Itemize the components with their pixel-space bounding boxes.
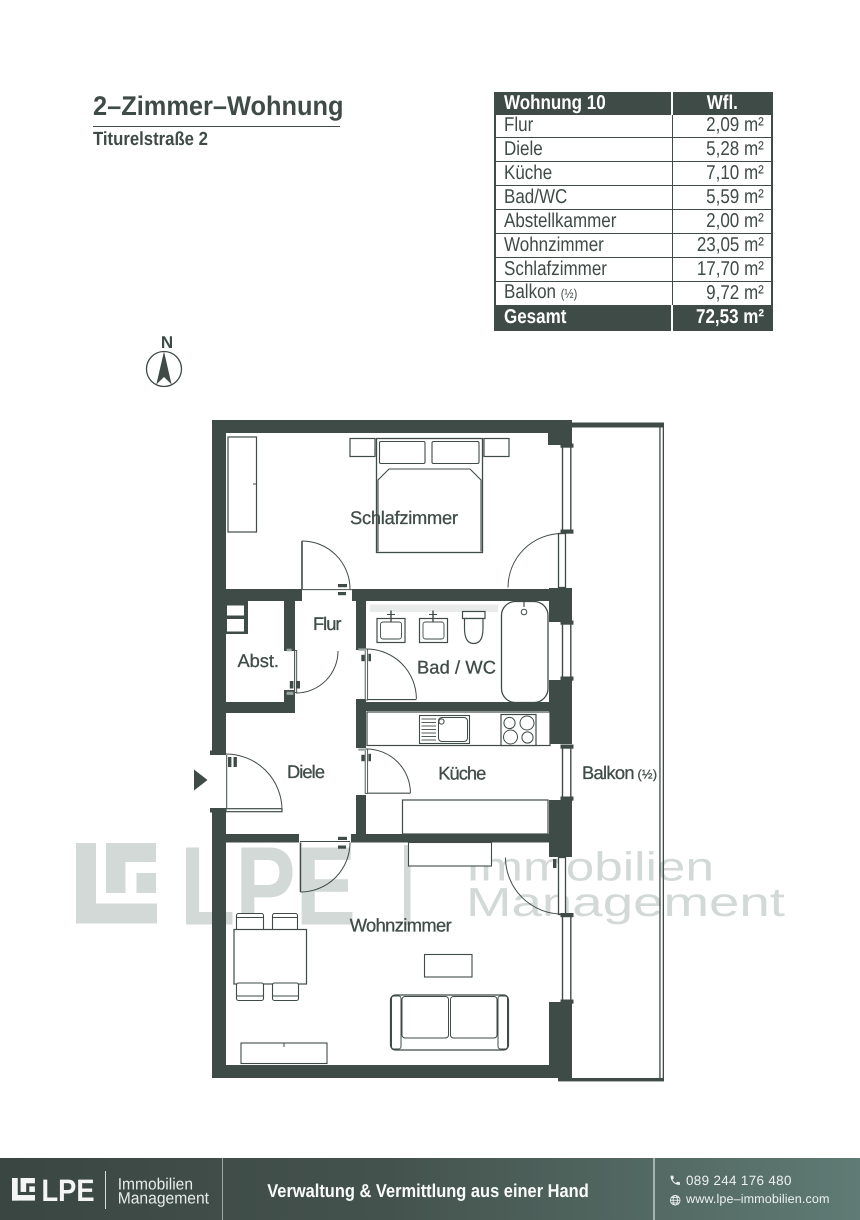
svg-text:LPE: LPE (42, 1173, 95, 1208)
svg-text:(½): (½) (638, 768, 658, 782)
svg-text:Management: Management (466, 879, 785, 925)
svg-text:Abst.: Abst. (238, 650, 280, 671)
svg-text:Management: Management (118, 1190, 210, 1208)
svg-text:Verwaltung & Vermittlung aus e: Verwaltung & Vermittlung aus einer Hand (267, 1180, 589, 1201)
svg-text:Bad / WC: Bad / WC (417, 657, 496, 678)
svg-text:Wohnzimmer: Wohnzimmer (350, 915, 452, 936)
svg-text:Schlafzimmer: Schlafzimmer (350, 507, 458, 528)
svg-text:Küche: Küche (438, 763, 486, 784)
svg-text:Diele: Diele (287, 761, 325, 782)
svg-text:Balkon: Balkon (582, 762, 635, 783)
svg-text:Flur: Flur (313, 613, 342, 634)
